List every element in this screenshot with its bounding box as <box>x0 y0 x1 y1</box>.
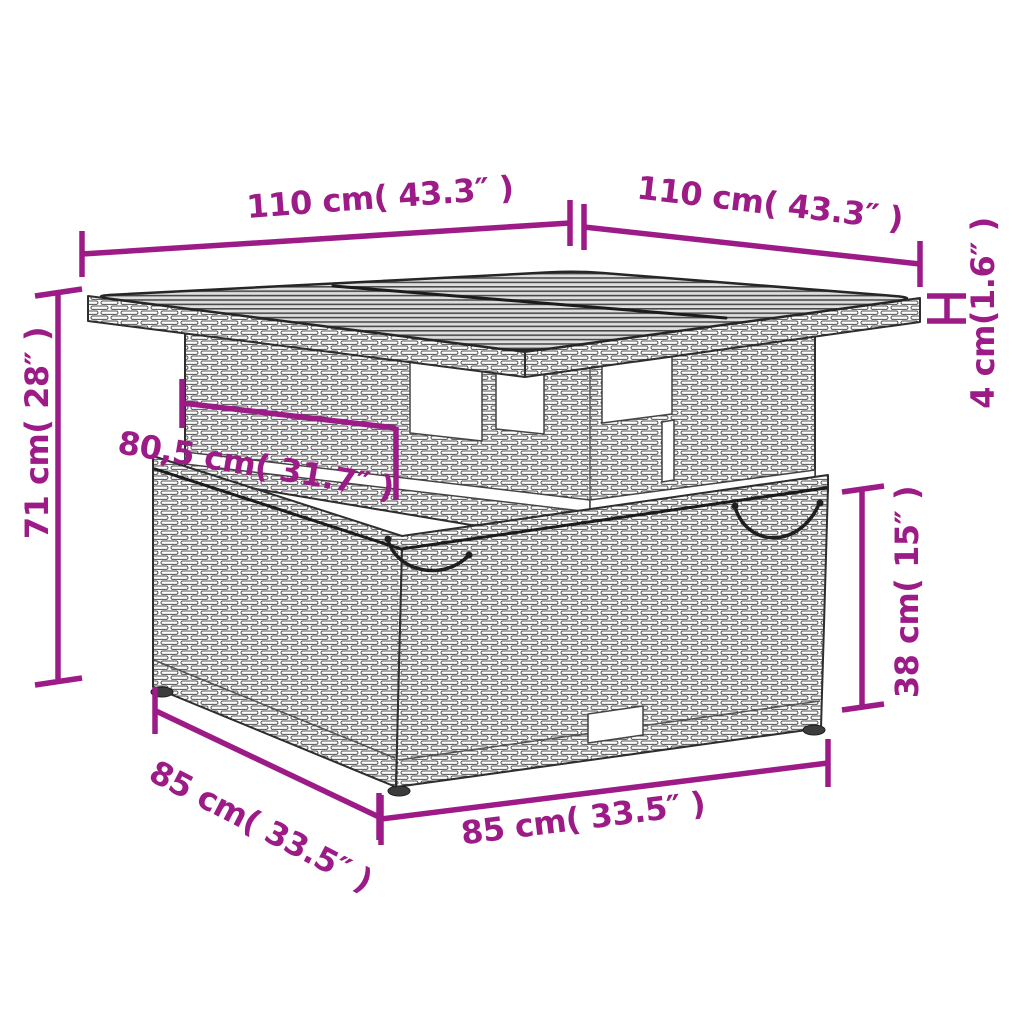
base-left-face <box>153 468 402 787</box>
dim-base-height <box>842 486 884 710</box>
dim-tabletop-thickness <box>927 296 966 321</box>
rope-anchor <box>466 552 473 559</box>
dim-label-overall-height: 71 cm( 28″ ) <box>18 327 56 539</box>
dim-label-tabletop-thickness: 4 cm(1.6″ ) <box>964 217 1002 409</box>
lift-post <box>662 420 674 482</box>
rope-anchor <box>817 500 824 507</box>
dim-label-base-edge-left: 85 cm( 33.5″ ) <box>143 753 379 900</box>
dimension-diagram-page: 110 cm( 43.3″ ) 110 cm( 43.3″ ) 4 cm(1.6… <box>0 0 1024 1024</box>
foot <box>388 786 410 796</box>
dim-label-tabletop-edge-right: 110 cm( 43.3″ ) <box>635 168 905 237</box>
dim-cap <box>842 704 884 710</box>
dim-line <box>82 223 570 254</box>
dim-label-tabletop-edge-left: 110 cm( 43.3″ ) <box>245 168 515 225</box>
rope-anchor <box>385 536 392 543</box>
dim-cap <box>35 289 82 296</box>
table-drawing <box>88 272 920 796</box>
dim-cap <box>35 678 82 685</box>
rope-anchor <box>732 503 739 510</box>
dimension-diagram-svg: 110 cm( 43.3″ ) 110 cm( 43.3″ ) 4 cm(1.6… <box>0 0 1024 1024</box>
dim-cap <box>842 486 884 492</box>
foot <box>803 725 825 735</box>
dim-label-base-height: 38 cm( 15″ ) <box>888 486 926 698</box>
